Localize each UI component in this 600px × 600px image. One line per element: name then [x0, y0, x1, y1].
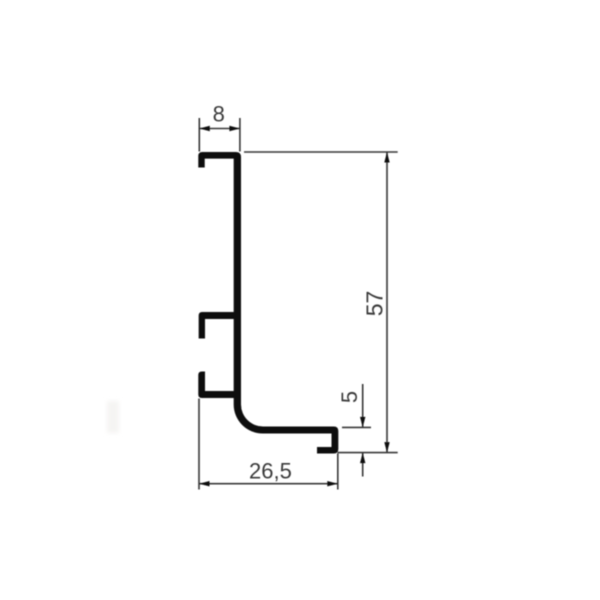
- svg-text:8: 8: [213, 102, 225, 127]
- svg-text:5: 5: [337, 391, 362, 403]
- svg-text:26,5: 26,5: [249, 458, 292, 483]
- svg-text:57: 57: [362, 291, 388, 317]
